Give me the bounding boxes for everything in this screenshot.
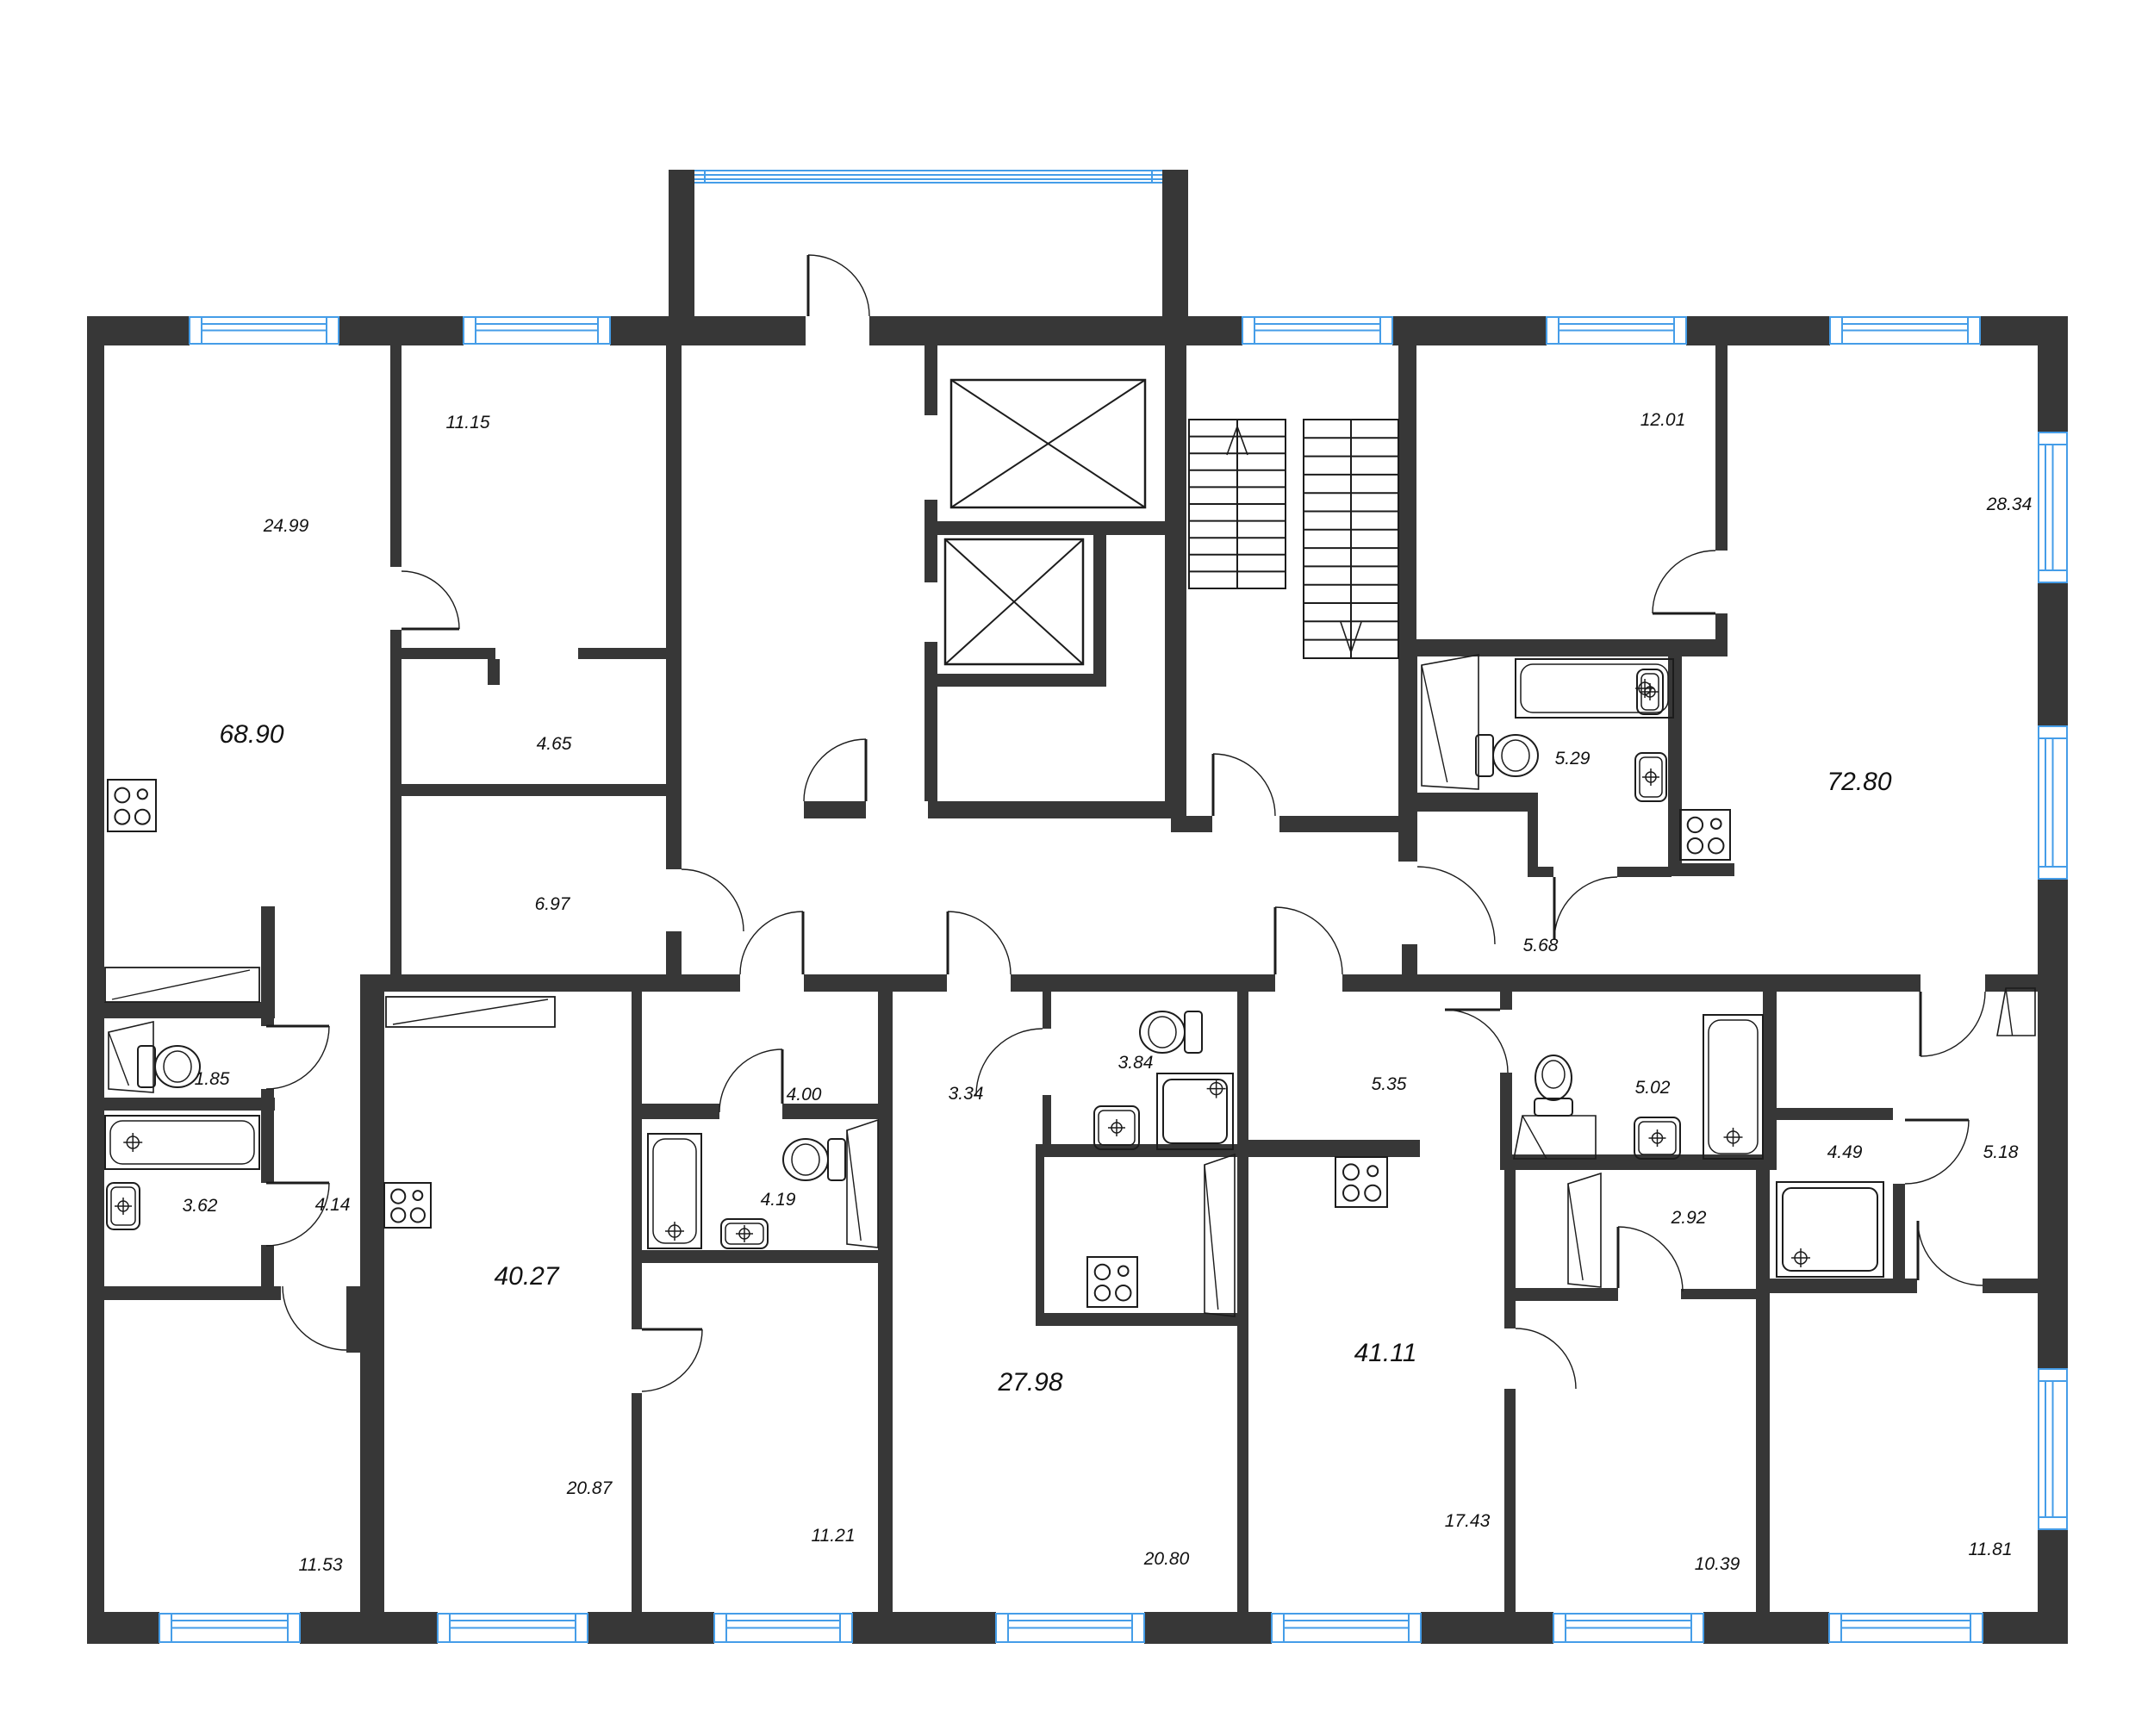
svg-text:4.49: 4.49 [1827, 1142, 1863, 1162]
svg-text:4.00: 4.00 [787, 1085, 822, 1104]
svg-text:20.87: 20.87 [566, 1478, 613, 1498]
svg-text:27.98: 27.98 [997, 1368, 1062, 1397]
svg-text:3.34: 3.34 [949, 1084, 984, 1104]
svg-text:10.39: 10.39 [1695, 1554, 1740, 1574]
svg-text:11.53: 11.53 [299, 1555, 343, 1575]
svg-text:3.84: 3.84 [1118, 1053, 1154, 1073]
svg-text:11.21: 11.21 [812, 1526, 856, 1546]
svg-text:3.62: 3.62 [183, 1196, 218, 1216]
svg-text:4.65: 4.65 [537, 734, 572, 754]
svg-text:24.99: 24.99 [263, 516, 309, 536]
svg-text:5.68: 5.68 [1523, 936, 1559, 955]
svg-text:11.81: 11.81 [1969, 1540, 2013, 1559]
svg-text:4.19: 4.19 [761, 1190, 796, 1210]
svg-text:40.27: 40.27 [494, 1262, 559, 1291]
svg-text:2.92: 2.92 [1671, 1208, 1707, 1228]
svg-text:41.11: 41.11 [1354, 1339, 1417, 1367]
svg-text:28.34: 28.34 [1986, 495, 2033, 514]
svg-text:1.85: 1.85 [195, 1069, 230, 1089]
svg-text:5.02: 5.02 [1635, 1078, 1671, 1098]
svg-text:4.14: 4.14 [315, 1195, 351, 1215]
svg-text:12.01: 12.01 [1640, 410, 1686, 430]
svg-text:68.90: 68.90 [219, 720, 283, 749]
svg-text:72.80: 72.80 [1827, 768, 1891, 796]
svg-text:6.97: 6.97 [535, 894, 571, 914]
svg-text:5.29: 5.29 [1555, 749, 1591, 768]
svg-text:5.18: 5.18 [1983, 1142, 2019, 1162]
svg-text:20.80: 20.80 [1143, 1549, 1190, 1569]
svg-text:11.15: 11.15 [446, 413, 490, 432]
svg-text:5.35: 5.35 [1372, 1074, 1407, 1094]
svg-text:17.43: 17.43 [1445, 1511, 1491, 1531]
